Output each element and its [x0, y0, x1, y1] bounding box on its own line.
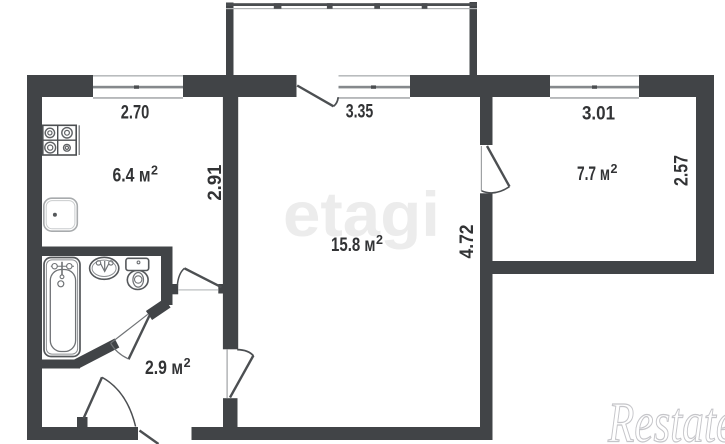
svg-text:2.9 м: 2.9 м	[145, 358, 183, 379]
svg-text:2: 2	[184, 356, 191, 370]
svg-text:3.35: 3.35	[346, 102, 374, 123]
svg-text:2: 2	[376, 233, 383, 247]
svg-text:7.7 м: 7.7 м	[577, 164, 610, 185]
svg-text:2.57: 2.57	[672, 155, 693, 186]
svg-text:Restate: Restate	[607, 392, 725, 444]
svg-text:2: 2	[151, 164, 158, 178]
svg-text:4.72: 4.72	[457, 225, 478, 259]
svg-text:2.91: 2.91	[205, 164, 226, 200]
svg-text:2.70: 2.70	[121, 102, 150, 123]
svg-text:2: 2	[611, 162, 618, 176]
svg-text:6.4 м: 6.4 м	[113, 166, 151, 187]
svg-text:15.8 м: 15.8 м	[331, 235, 376, 256]
svg-text:3.01: 3.01	[582, 104, 615, 125]
